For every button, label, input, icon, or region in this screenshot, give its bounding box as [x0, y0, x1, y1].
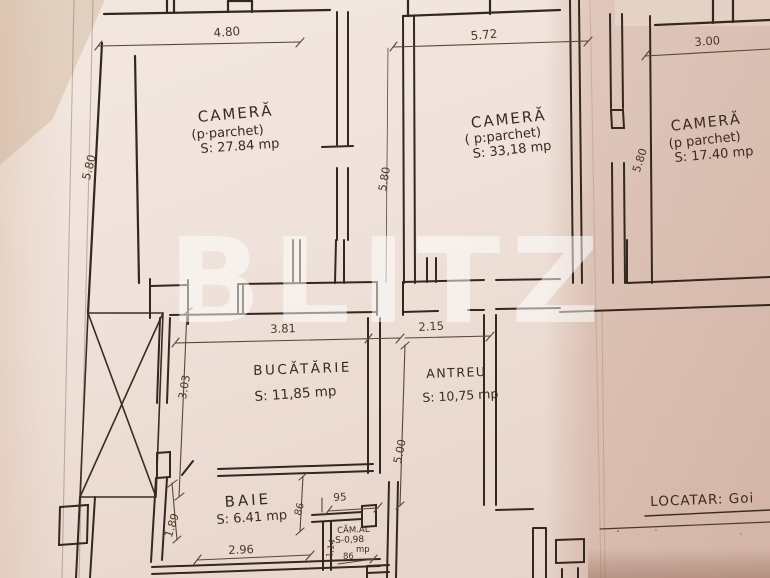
- room-name-bucatarie: BUCĂTĂRIE: [253, 360, 352, 379]
- room-area-unit-camara: mp: [356, 545, 370, 555]
- pencil-specks: [617, 529, 742, 535]
- shaft-hatch-box: [80, 313, 163, 497]
- room-name-baie: BAIE: [224, 490, 272, 511]
- dim-camara-top: 95: [333, 491, 347, 504]
- room-name-camara: CĂM.AL: [337, 525, 370, 536]
- dim-top-right: 3.00: [694, 33, 721, 49]
- blitz-watermark: BLITZ: [168, 222, 610, 340]
- dim-camara-width: 86: [343, 552, 354, 562]
- dim-top-left: 4.80: [213, 24, 241, 40]
- floorplan-photo: CAMERĂ (p·parchet) S: 27.84 mp CAMERĂ ( …: [0, 0, 770, 578]
- dim-baie-width: 2.96: [228, 542, 254, 557]
- dim-top-mid: 5.72: [470, 27, 498, 43]
- room-name-antreu: ANTREU: [426, 364, 487, 381]
